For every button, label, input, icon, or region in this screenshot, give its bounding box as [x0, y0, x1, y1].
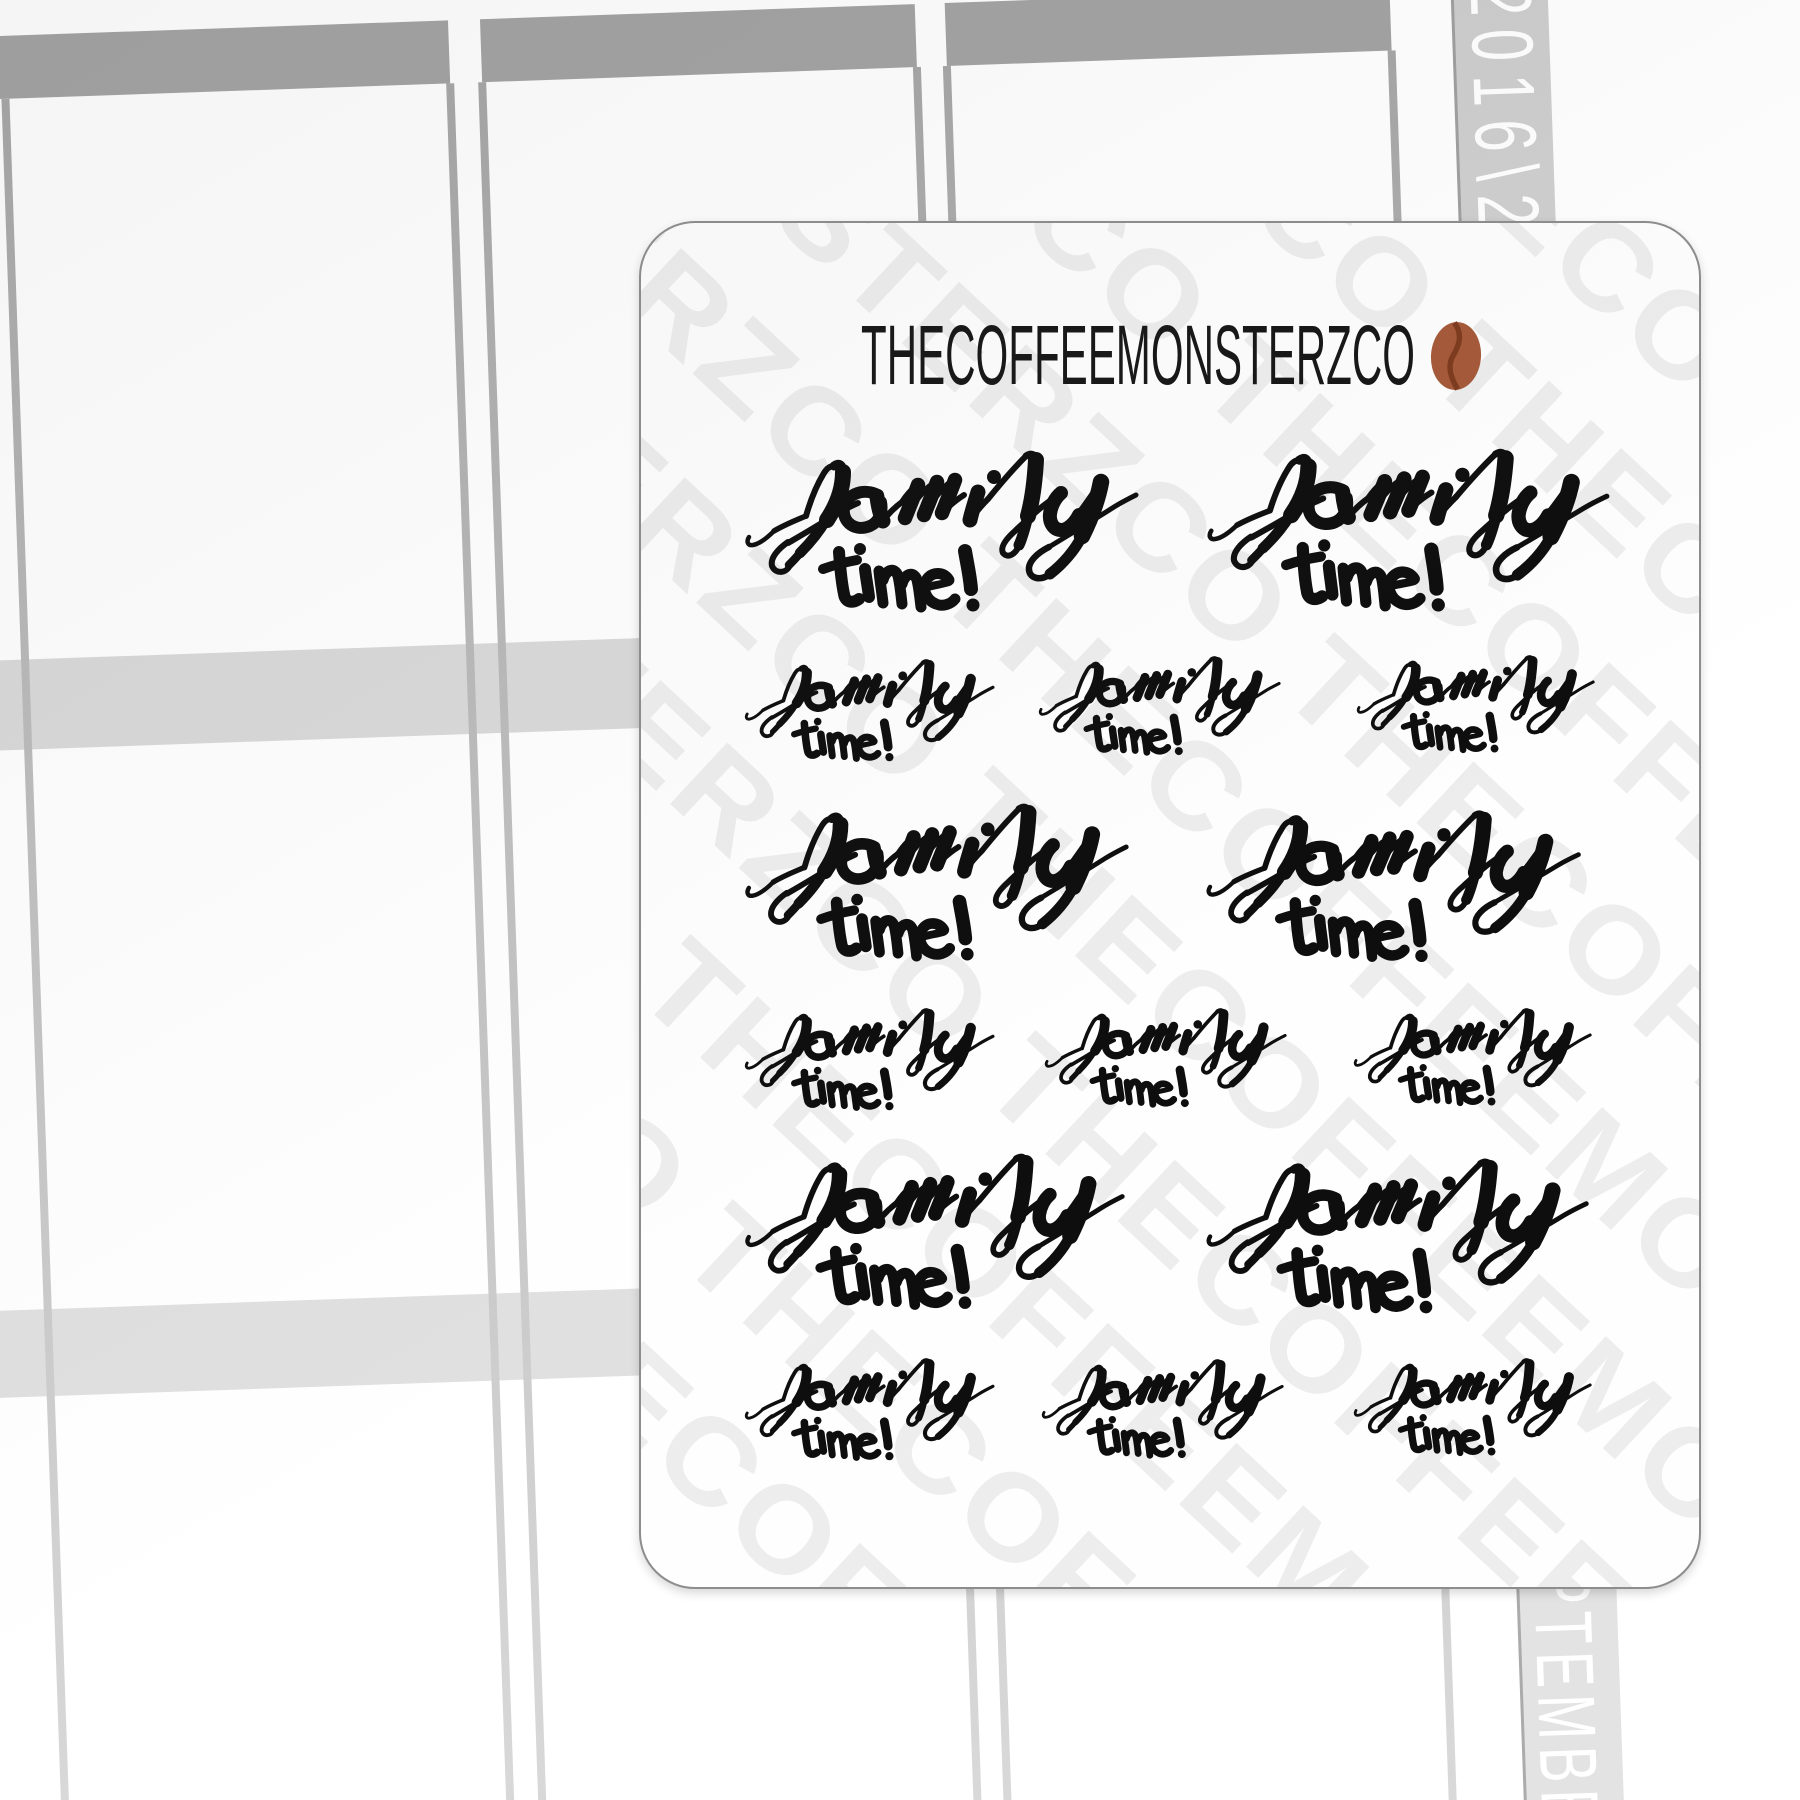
- svg-text:THECOFFEEMONSTERZCO: THECOFFEEMONSTERZCO: [861, 308, 1415, 402]
- svg-text:PTEMBER: PTEMBER: [1516, 1567, 1617, 1800]
